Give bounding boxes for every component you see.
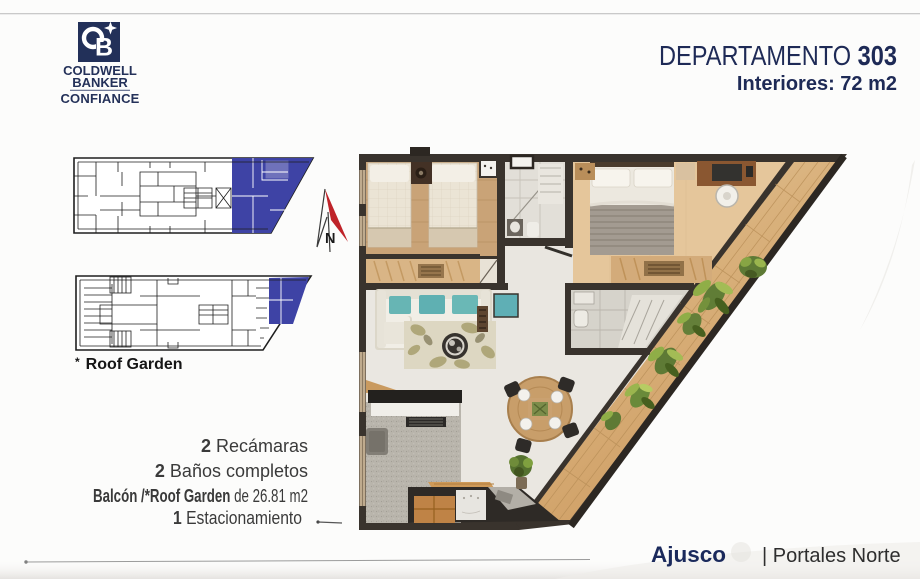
svg-text:2 Baños completos: 2 Baños completos <box>155 461 308 481</box>
svg-text:N: N <box>325 231 335 247</box>
svg-text:Ajusco: Ajusco <box>651 542 726 567</box>
svg-text:DEPARTAMENTO 303: DEPARTAMENTO 303 <box>659 40 897 71</box>
svg-text:CONFIANCE: CONFIANCE <box>60 91 139 106</box>
svg-text:1 Estacionamiento: 1 Estacionamiento <box>173 508 302 528</box>
svg-text:B: B <box>95 34 113 62</box>
svg-text:| Portales Norte: | Portales Norte <box>762 545 901 567</box>
svg-text:2 Recámaras: 2 Recámaras <box>201 436 308 456</box>
svg-text:BANKER: BANKER <box>72 75 128 90</box>
svg-text:Balcón /*Roof Garden de 26.81: Balcón /*Roof Garden de 26.81 m2 <box>93 486 308 506</box>
svg-text:*Roof Garden: *Roof Garden <box>75 355 183 373</box>
svg-text:Interiores: 72 m2: Interiores: 72 m2 <box>737 73 897 95</box>
